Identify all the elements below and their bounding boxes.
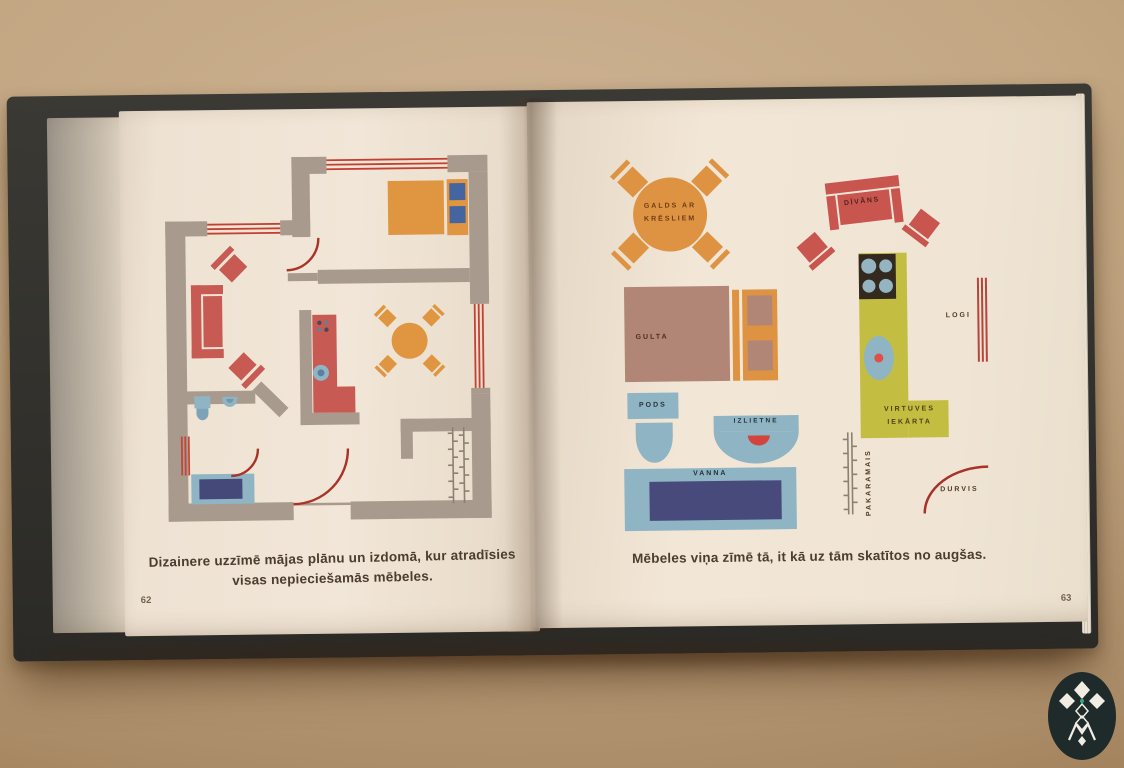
- armchair-symbol: [902, 207, 943, 247]
- bed-symbol: [388, 179, 469, 236]
- page-number-right: 63: [1061, 593, 1072, 604]
- coat-rack-symbol: [448, 427, 470, 503]
- book-cast-shadow: [30, 645, 1070, 665]
- right-page: GALDS AR KRĒSLIEM DĪVĀNS GULTA PODS IZLI…: [527, 96, 1088, 629]
- toilet-label: PODS: [627, 401, 678, 409]
- latvian-ornament-logo-icon: [1042, 668, 1122, 764]
- photo-of-open-book: { "book": { "left_page": { "page_number"…: [0, 0, 1124, 768]
- floor-plan-drawing: [119, 144, 539, 549]
- left-page: Dizainere uzzīmē mājas plānu un izdomā, …: [119, 106, 540, 636]
- windows-label: LOGI: [940, 312, 976, 319]
- sink-label: IZLIETNE: [714, 417, 799, 425]
- armchair-symbol: [794, 230, 835, 271]
- left-page-caption: Dizainere uzzīmē mājas plānu un izdomā, …: [132, 544, 533, 593]
- table-label: GALDS AR KRĒSLIEM: [620, 200, 720, 226]
- kitchen-label-line2: IEKĀRTA: [869, 416, 951, 430]
- sofa-symbol: [191, 285, 224, 358]
- bathroom-fixtures: [181, 396, 254, 505]
- table-label-line2: KRĒSLIEM: [620, 212, 720, 226]
- kitchen-counter-symbol: [312, 314, 355, 413]
- armchair-symbol: [226, 350, 265, 389]
- door-label: DURVIS: [933, 486, 985, 494]
- bed-label: GULTA: [636, 334, 669, 341]
- table-label-line1: GALDS AR: [620, 200, 720, 214]
- page-number-left: 62: [141, 595, 152, 606]
- floor-plan: [164, 155, 491, 522]
- kitchen-label: VIRTUVES IEKĀRTA: [868, 403, 950, 429]
- windows-symbol: [978, 278, 987, 362]
- coat-rack-symbol: [843, 432, 858, 514]
- kitchen-label-line1: VIRTUVES: [868, 403, 950, 417]
- open-book: Dizainere uzzīmē mājas plānu un izdomā, …: [7, 83, 1099, 661]
- dining-table-symbol: [374, 304, 446, 378]
- coat-rack-label: PAKARAMAIS: [865, 430, 873, 516]
- armchair-symbol: [210, 246, 249, 285]
